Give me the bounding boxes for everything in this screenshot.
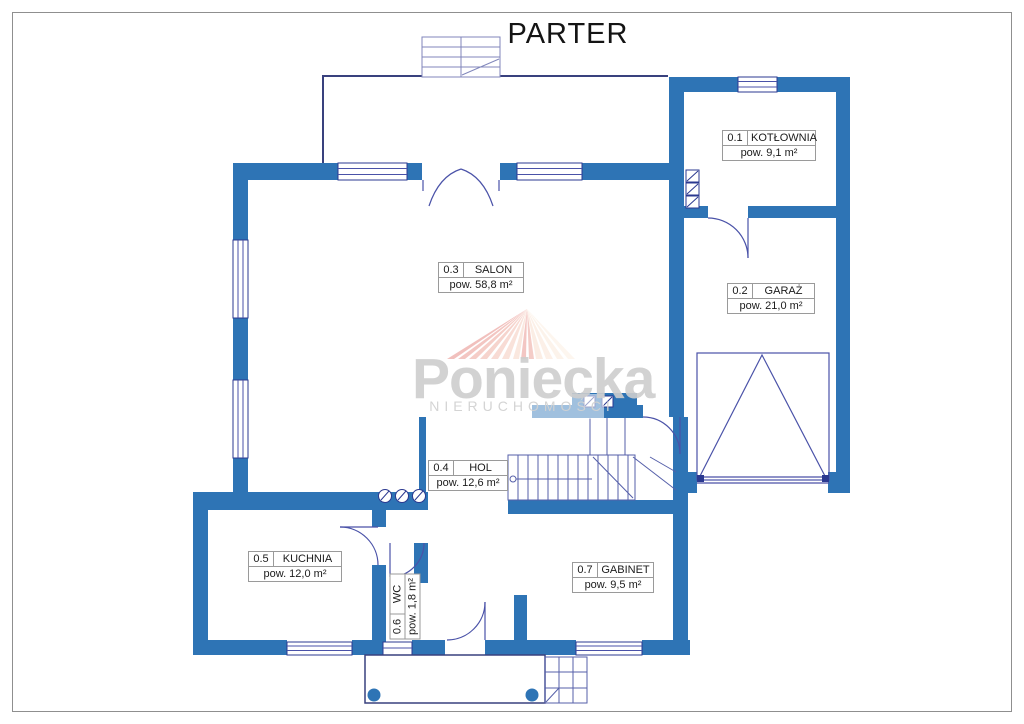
room-label-kuchnia: 0.5KUCHNIA pow. 12,0 m² [248,551,342,582]
room-id: 0.1 [723,131,748,145]
porch [365,655,545,703]
window-wc [383,642,412,655]
door-entrance [447,602,485,640]
floor-plan-page: PARTER [0,0,1024,724]
room-area: pow. 58,8 m² [439,278,523,292]
window-kuchnia [287,642,352,655]
room-id: 0.7 [573,563,598,577]
room-name: SALON [464,263,523,277]
room-name: GABINET [598,563,653,577]
room-label-kotlownia: 0.1KOTŁOWNIA pow. 9,1 m² [722,130,816,161]
window-gabinet [576,642,642,655]
room-name: KUCHNIA [274,552,341,566]
room-area: pow. 12,6 m² [429,476,507,490]
vent-circles [379,490,426,503]
door-kotlownia [708,218,748,258]
window-salon-left-2 [233,380,248,458]
vent-squares [584,396,613,407]
chimney-flues [686,170,699,208]
room-name: GARAŻ [753,284,814,298]
exterior-stair-top [422,37,500,77]
room-area: pow. 12,0 m² [249,567,341,581]
room-id: 0.3 [439,263,464,277]
room-label-wc: 0.6WC pow. 1,8 m² [390,574,421,640]
plan-linework [0,0,1024,724]
room-id: 0.5 [249,552,274,566]
staircase [508,418,676,500]
room-area: pow. 9,1 m² [723,146,815,160]
room-id: 0.2 [728,284,753,298]
window-kotlownia [738,77,777,92]
room-name: HOL [454,461,507,475]
room-area: pow. 9,5 m² [573,578,653,592]
terrace-outline [323,76,668,163]
room-name: KOTŁOWNIA [748,131,820,145]
window-salon-top-1 [338,163,407,180]
door-kuchnia [340,527,378,565]
room-area: pow. 1,8 m² [406,575,420,639]
room-label-hol: 0.4HOL pow. 12,6 m² [428,460,508,491]
room-label-garaz: 0.2GARAŻ pow. 21,0 m² [727,283,815,314]
room-id: 0.6 [391,614,405,639]
exterior-stair-bottom [545,657,587,703]
room-name: WC [391,575,405,614]
room-label-salon: 0.3SALON pow. 58,8 m² [438,262,524,293]
door-wc [390,543,424,577]
porch-column [368,689,381,702]
porch-column [526,689,539,702]
door-garaz-hol [643,417,680,454]
room-id: 0.4 [429,461,454,475]
window-salon-left-1 [233,240,248,318]
door-salon-french [423,169,499,206]
garage-door [697,353,829,483]
room-area: pow. 21,0 m² [728,299,814,313]
room-label-gabinet: 0.7GABINET pow. 9,5 m² [572,562,654,593]
window-salon-top-2 [517,163,582,180]
